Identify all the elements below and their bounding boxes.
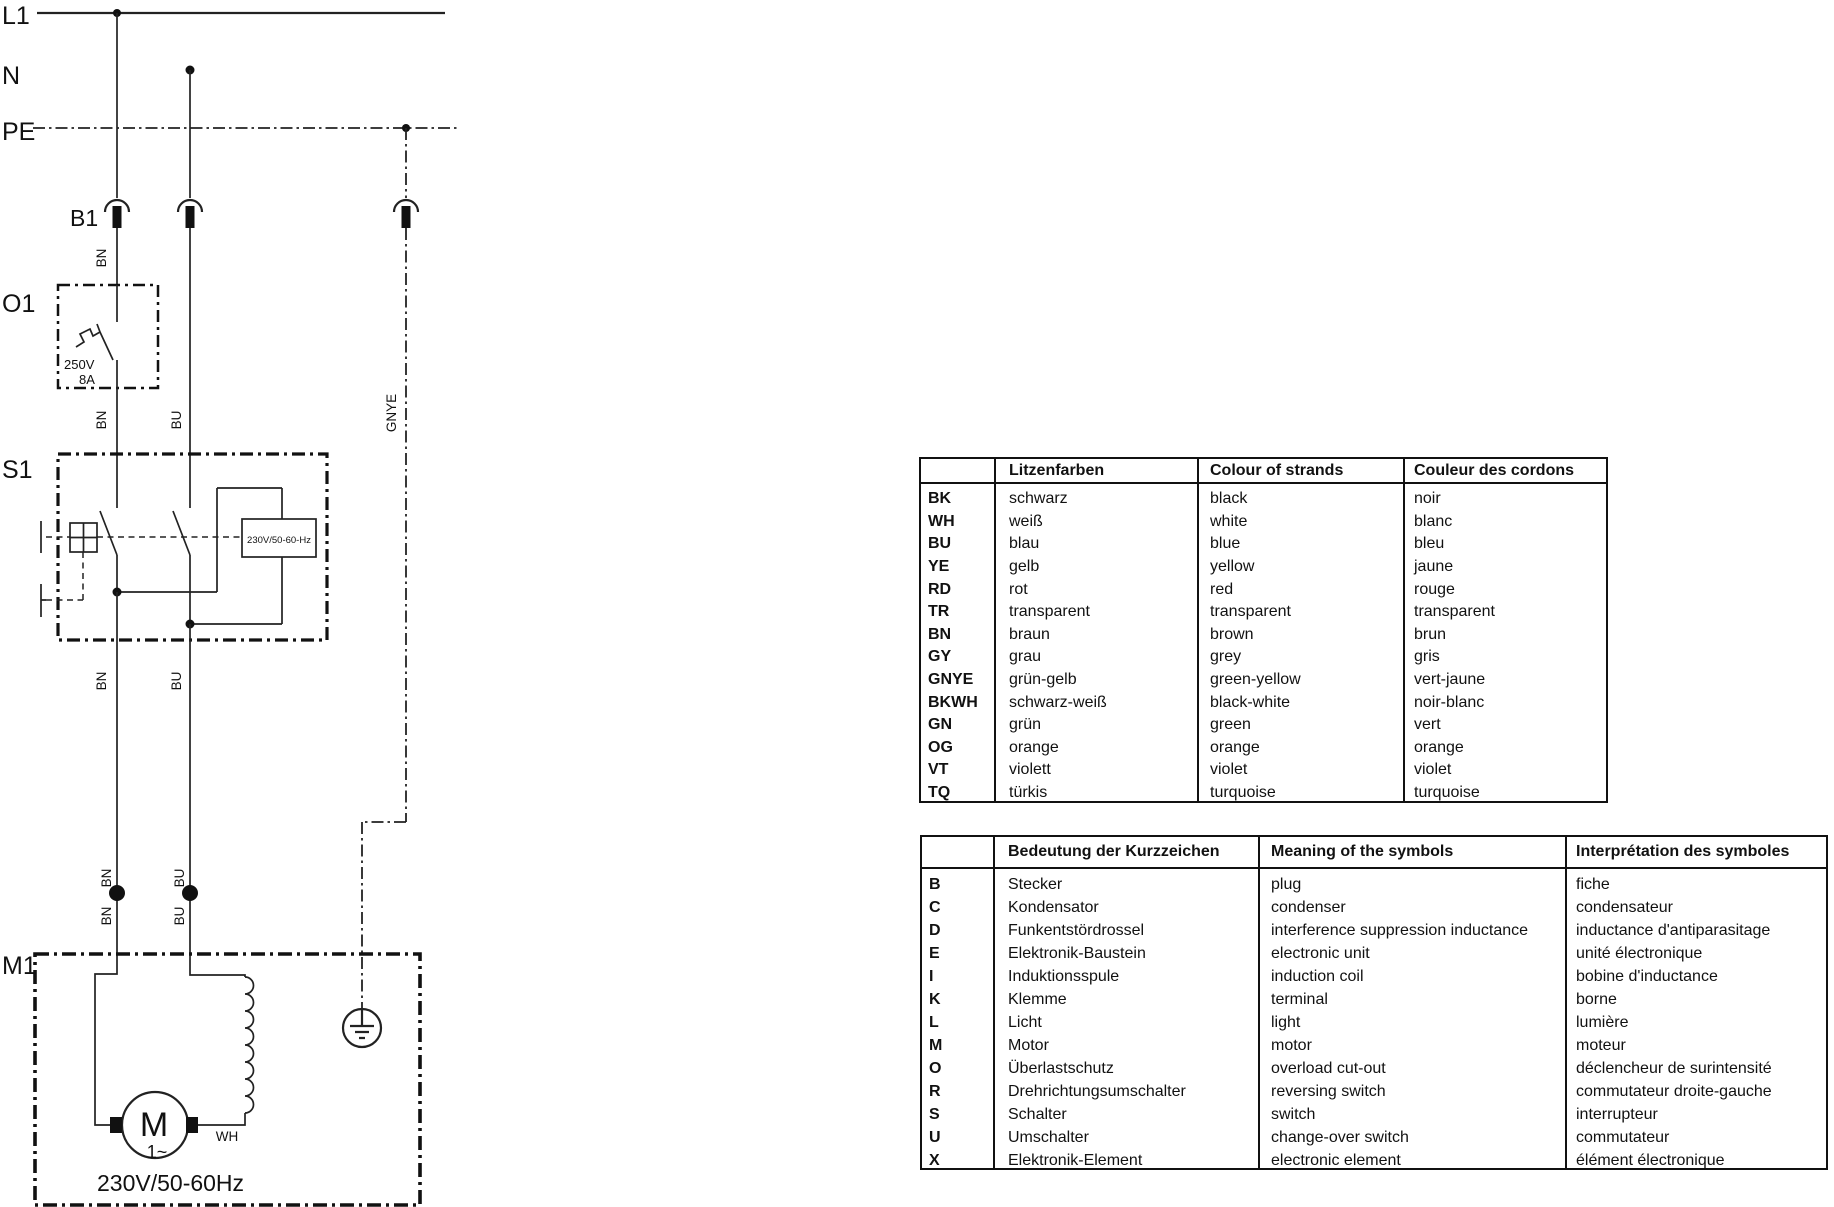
plug-pin-icon — [113, 206, 122, 228]
mechanical-link — [46, 552, 83, 600]
motor-symbol-m: M — [140, 1106, 168, 1144]
wire-label-bu: BU — [172, 907, 187, 926]
wire-label-bu: BU — [169, 672, 184, 691]
header-litzenfarben: Litzenfarben — [994, 462, 1197, 480]
wire-color-table: Litzenfarben Colour of strands Couleur d… — [919, 457, 1608, 803]
wire-label-bn: BN — [99, 869, 114, 888]
symbol-meaning-table: Bedeutung der Kurzzeichen Meaning of the… — [920, 835, 1828, 1170]
color-code-cell: OG — [921, 737, 994, 760]
wire-label-bn: BN — [99, 907, 114, 926]
wire-label-wh: WH — [216, 1129, 239, 1144]
color-fr-cell: transparent — [1403, 601, 1606, 624]
color-code-cell: TR — [921, 601, 994, 624]
color-en-cell: black — [1197, 488, 1403, 511]
wire-label-bu: BU — [169, 411, 184, 430]
color-fr-cell: blanc — [1403, 511, 1606, 534]
color-de-cell: grün-gelb — [994, 669, 1197, 692]
color-de-cell: gelb — [994, 556, 1197, 579]
symbol-code-cell: L — [922, 1011, 993, 1034]
relay-rating-value: 230V/50-60-Hz — [247, 535, 311, 546]
color-en-cell: turquoise — [1197, 782, 1403, 805]
thermal-release-icon — [76, 329, 100, 347]
color-code-cell: YE — [921, 556, 994, 579]
component-label-o1: O1 — [2, 290, 35, 318]
symbol-fr-cell: inductance d'antiparasitage — [1565, 919, 1826, 942]
color-code-cell: BN — [921, 624, 994, 647]
color-de-cell: türkis — [994, 782, 1197, 805]
symbol-code-cell: B — [922, 873, 993, 896]
symbol-fr-cell: déclencheur de surintensité — [1565, 1057, 1826, 1080]
plug-pin-icon — [402, 206, 411, 228]
symbol-en-cell: electronic element — [1258, 1149, 1565, 1172]
color-fr-cell: rouge — [1403, 578, 1606, 601]
relay-wiring-loop — [117, 488, 282, 624]
symbol-de-cell: Schalter — [993, 1103, 1258, 1126]
symbol-de-cell: Elektronik-Element — [993, 1149, 1258, 1172]
symbol-de-cell: Kondensator — [993, 896, 1258, 919]
header-interpretation: Interprétation des symboles — [1565, 843, 1826, 861]
motor-terminal — [110, 1117, 122, 1133]
color-fr-cell: turquoise — [1403, 782, 1606, 805]
o1-enclosure — [58, 285, 158, 388]
symbol-fr-cell: bobine d'inductance — [1565, 965, 1826, 988]
symbol-en-cell: reversing switch — [1258, 1080, 1565, 1103]
pushbutton-cross-icon — [70, 523, 97, 552]
symbol-code-cell: E — [922, 942, 993, 965]
symbol-code-cell: D — [922, 919, 993, 942]
symbol-fr-cell: moteur — [1565, 1034, 1826, 1057]
table-column-divider — [1403, 459, 1405, 801]
color-code-cell: VT — [921, 759, 994, 782]
color-de-cell: orange — [994, 737, 1197, 760]
wire-label-gnye: GNYE — [384, 394, 399, 432]
color-en-cell: yellow — [1197, 556, 1403, 579]
symbol-en-cell: motor — [1258, 1034, 1565, 1057]
rail-label-n: N — [2, 62, 20, 90]
symbol-fr-cell: unité électronique — [1565, 942, 1826, 965]
induction-coil-icon — [245, 977, 254, 1113]
plug-pin-icon — [186, 206, 195, 228]
color-en-cell: green — [1197, 714, 1403, 737]
symbol-de-cell: Induktionsspule — [993, 965, 1258, 988]
symbol-fr-cell: commutateur droite-gauche — [1565, 1080, 1826, 1103]
color-de-cell: transparent — [994, 601, 1197, 624]
color-code-cell: TQ — [921, 782, 994, 805]
header-meaning: Meaning of the symbols — [1258, 843, 1565, 861]
color-code-cell: RD — [921, 578, 994, 601]
symbol-en-cell: condenser — [1258, 896, 1565, 919]
color-fr-cell: noir-blanc — [1403, 691, 1606, 714]
contact-blade-icon — [97, 324, 113, 360]
symbol-en-cell: electronic unit — [1258, 942, 1565, 965]
m1-enclosure — [35, 954, 420, 1205]
color-en-cell: violet — [1197, 759, 1403, 782]
color-de-cell: schwarz-weiß — [994, 691, 1197, 714]
component-label-m1: M1 — [2, 952, 37, 980]
color-fr-cell: bleu — [1403, 533, 1606, 556]
color-fr-cell: brun — [1403, 624, 1606, 647]
symbol-code-cell: C — [922, 896, 993, 919]
power-rails: L1 N PE — [2, 2, 460, 146]
symbol-de-cell: Funkentstördrossel — [993, 919, 1258, 942]
symbol-de-cell: Motor — [993, 1034, 1258, 1057]
color-de-cell: braun — [994, 624, 1197, 647]
color-fr-cell: jaune — [1403, 556, 1606, 579]
symbol-en-cell: interference suppression inductance — [1258, 919, 1565, 942]
neutral-conductor — [190, 624, 245, 977]
wire-color-table-header: Litzenfarben Colour of strands Couleur d… — [921, 459, 1606, 484]
color-en-cell: orange — [1197, 737, 1403, 760]
table-column-divider — [994, 459, 996, 801]
motor-unit-m1: M1 WH M 1~ 230V/50-60Hz — [2, 952, 420, 1205]
color-en-cell: transparent — [1197, 601, 1403, 624]
color-code-cell: BK — [921, 488, 994, 511]
symbol-en-cell: plug — [1258, 873, 1565, 896]
component-label-b1: B1 — [70, 205, 98, 231]
color-fr-cell: vert — [1403, 714, 1606, 737]
switch-contact-icon — [173, 511, 190, 555]
color-en-cell: white — [1197, 511, 1403, 534]
wire-label-bn: BN — [94, 411, 109, 430]
motor-rating-value: 230V/50-60Hz — [97, 1170, 244, 1196]
symbol-de-cell: Stecker — [993, 873, 1258, 896]
symbol-en-cell: induction coil — [1258, 965, 1565, 988]
symbol-fr-cell: commutateur — [1565, 1126, 1826, 1149]
symbol-code-cell: S — [922, 1103, 993, 1126]
gnye-conductor — [362, 228, 406, 1008]
color-code-cell: BKWH — [921, 691, 994, 714]
color-en-cell: blue — [1197, 533, 1403, 556]
color-de-cell: blau — [994, 533, 1197, 556]
color-code-cell: WH — [921, 511, 994, 534]
symbol-en-cell: overload cut-out — [1258, 1057, 1565, 1080]
header-bedeutung: Bedeutung der Kurzzeichen — [993, 843, 1258, 861]
symbol-de-cell: Umschalter — [993, 1126, 1258, 1149]
symbol-fr-cell: élément électronique — [1565, 1149, 1826, 1172]
wire-color-table-body: BK schwarz black noir WH weiß white blan… — [921, 484, 1606, 804]
motor-terminal — [186, 1117, 198, 1133]
color-fr-cell: noir — [1403, 488, 1606, 511]
symbol-table-body: B Stecker plug fiche C Kondensator conde… — [922, 869, 1826, 1172]
component-label-s1: S1 — [2, 456, 33, 484]
table-column-divider — [993, 837, 995, 1168]
symbol-en-cell: switch — [1258, 1103, 1565, 1126]
wire-label-bn: BN — [94, 249, 109, 268]
wire-label-bu: BU — [172, 869, 187, 888]
symbol-de-cell: Überlastschutz — [993, 1057, 1258, 1080]
symbol-code-cell: I — [922, 965, 993, 988]
color-de-cell: violett — [994, 759, 1197, 782]
color-en-cell: red — [1197, 578, 1403, 601]
earth-ground-icon — [343, 1009, 381, 1047]
symbol-de-cell: Klemme — [993, 988, 1258, 1011]
s1-enclosure — [58, 454, 327, 640]
table-column-divider — [1197, 459, 1199, 801]
color-de-cell: rot — [994, 578, 1197, 601]
switch-s1: S1 230V/50-60-Hz — [2, 454, 327, 640]
symbol-de-cell: Drehrichtungsumschalter — [993, 1080, 1258, 1103]
symbol-en-cell: light — [1258, 1011, 1565, 1034]
overload-cutout-o1: O1 250V 8A — [2, 285, 158, 388]
symbol-code-cell: R — [922, 1080, 993, 1103]
symbol-code-cell: O — [922, 1057, 993, 1080]
symbol-code-cell: X — [922, 1149, 993, 1172]
rail-label-pe: PE — [2, 118, 35, 146]
symbol-code-cell: U — [922, 1126, 993, 1149]
color-fr-cell: gris — [1403, 646, 1606, 669]
color-de-cell: grün — [994, 714, 1197, 737]
symbol-code-cell: M — [922, 1034, 993, 1057]
color-en-cell: grey — [1197, 646, 1403, 669]
color-code-cell: BU — [921, 533, 994, 556]
symbol-fr-cell: borne — [1565, 988, 1826, 1011]
color-en-cell: green-yellow — [1197, 669, 1403, 692]
overload-current-value: 8A — [79, 372, 95, 387]
scanned-wiring-diagram-page: { "schematic": { "power_labels": { "l1":… — [0, 0, 1834, 1207]
overload-voltage-value: 250V — [64, 357, 95, 372]
color-fr-cell: vert-jaune — [1403, 669, 1606, 692]
symbol-fr-cell: interrupteur — [1565, 1103, 1826, 1126]
rail-label-l1: L1 — [2, 2, 30, 30]
actuator-end-stop — [41, 521, 46, 617]
symbol-code-cell: K — [922, 988, 993, 1011]
symbol-fr-cell: condensateur — [1565, 896, 1826, 919]
wiring-diagram: L1 N PE B1 BN O1 250V 8A BN BU — [0, 0, 500, 1207]
table-column-divider — [1565, 837, 1567, 1168]
table-column-divider — [1258, 837, 1260, 1168]
symbol-fr-cell: lumière — [1565, 1011, 1826, 1034]
color-de-cell: grau — [994, 646, 1197, 669]
color-en-cell: black-white — [1197, 691, 1403, 714]
color-en-cell: brown — [1197, 624, 1403, 647]
symbol-de-cell: Licht — [993, 1011, 1258, 1034]
symbol-fr-cell: fiche — [1565, 873, 1826, 896]
color-fr-cell: orange — [1403, 737, 1606, 760]
plug-connector-b1: B1 — [70, 200, 418, 231]
color-de-cell: weiß — [994, 511, 1197, 534]
symbol-table-header: Bedeutung der Kurzzeichen Meaning of the… — [922, 837, 1826, 869]
color-fr-cell: violet — [1403, 759, 1606, 782]
color-code-cell: GY — [921, 646, 994, 669]
wire-label-bn: BN — [94, 672, 109, 691]
motor-phase-symbol: 1~ — [147, 1142, 168, 1162]
coil-to-motor-wire — [198, 1113, 245, 1125]
color-code-cell: GN — [921, 714, 994, 737]
header-colour-of-strands: Colour of strands — [1197, 462, 1403, 480]
color-de-cell: schwarz — [994, 488, 1197, 511]
switch-contact-icon — [100, 511, 117, 555]
symbol-en-cell: terminal — [1258, 988, 1565, 1011]
color-code-cell: GNYE — [921, 669, 994, 692]
header-couleur-des-cordons: Couleur des cordons — [1403, 462, 1606, 480]
symbol-de-cell: Elektronik-Baustein — [993, 942, 1258, 965]
symbol-en-cell: change-over switch — [1258, 1126, 1565, 1149]
